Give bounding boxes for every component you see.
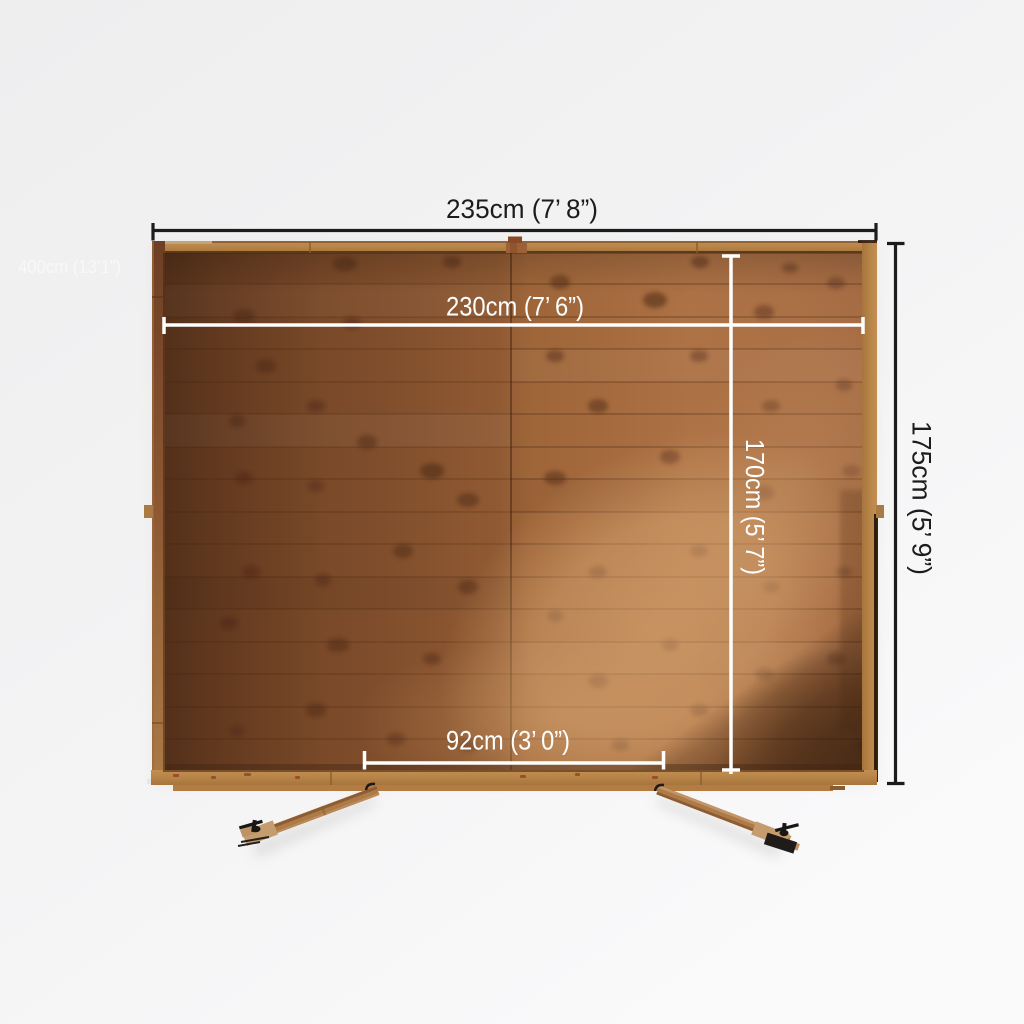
- svg-text:92cm (3’ 0”): 92cm (3’ 0”): [446, 726, 570, 756]
- svg-text:230cm (7’ 6”): 230cm (7’ 6”): [446, 292, 584, 322]
- svg-text:170cm (5’ 7”): 170cm (5’ 7”): [740, 439, 770, 575]
- svg-text:235cm (7’ 8”): 235cm (7’ 8”): [446, 194, 598, 224]
- svg-text:400cm (13’1”): 400cm (13’1”): [18, 256, 121, 277]
- svg-text:175cm (5’ 9”): 175cm (5’ 9”): [907, 421, 937, 575]
